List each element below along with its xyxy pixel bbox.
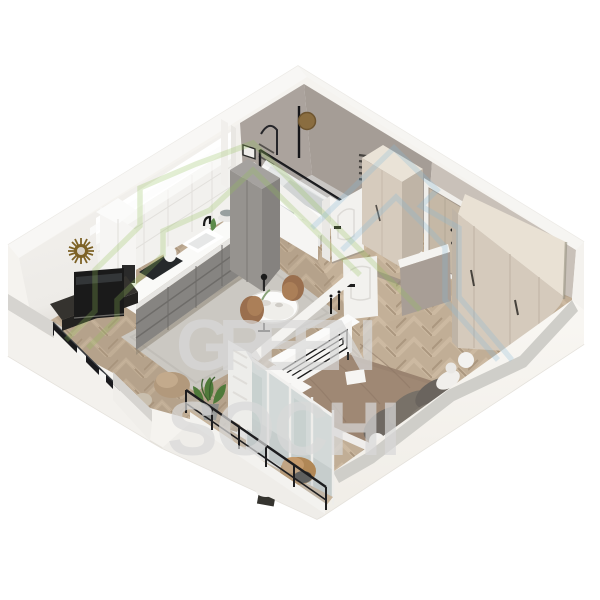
svg-text:GREEN: GREEN xyxy=(176,306,378,386)
svg-text:SOCHI: SOCHI xyxy=(167,387,405,472)
